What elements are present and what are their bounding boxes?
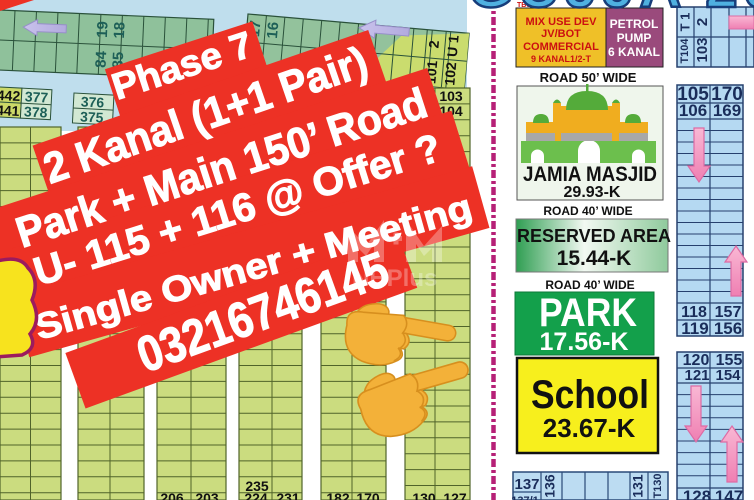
svg-text:182: 182 bbox=[326, 490, 350, 500]
svg-text:JAMIA MASJID: JAMIA MASJID bbox=[523, 163, 657, 186]
svg-text:JV/BOT: JV/BOT bbox=[541, 28, 581, 40]
svg-text:RESERVED AREA: RESERVED AREA bbox=[517, 226, 671, 246]
svg-text:29.93-K: 29.93-K bbox=[564, 184, 621, 201]
svg-text:19: 19 bbox=[94, 21, 112, 38]
svg-text:147: 147 bbox=[715, 487, 743, 500]
svg-text:NHPlus: NHPlus bbox=[352, 265, 437, 292]
svg-text:169: 169 bbox=[713, 101, 741, 120]
svg-text:127: 127 bbox=[443, 490, 467, 500]
svg-text:203: 203 bbox=[195, 490, 219, 500]
svg-text:17.56-K: 17.56-K bbox=[540, 328, 629, 356]
svg-text:136: 136 bbox=[542, 474, 558, 498]
svg-text:6 KANAL: 6 KANAL bbox=[608, 45, 660, 59]
svg-text:ROAD 40’ WIDE: ROAD 40’ WIDE bbox=[543, 204, 632, 218]
svg-text:441: 441 bbox=[0, 102, 20, 119]
svg-text:ROAD 40’ WIDE: ROAD 40’ WIDE bbox=[545, 278, 634, 292]
svg-text:T130: T130 bbox=[652, 473, 664, 498]
svg-text:ROAD 50’ WIDE: ROAD 50’ WIDE bbox=[540, 70, 637, 85]
svg-text:23.67-K: 23.67-K bbox=[543, 413, 636, 443]
svg-text:128: 128 bbox=[683, 487, 711, 500]
svg-text:2: 2 bbox=[425, 40, 442, 49]
svg-text:102: 102 bbox=[441, 61, 459, 86]
svg-text:School: School bbox=[531, 373, 649, 417]
svg-text:206: 206 bbox=[160, 490, 184, 500]
svg-text:9 KANAL1/2-T: 9 KANAL1/2-T bbox=[531, 54, 592, 64]
svg-text:T104: T104 bbox=[679, 38, 691, 64]
svg-text:U 1: U 1 bbox=[444, 34, 462, 57]
svg-text:154: 154 bbox=[715, 367, 741, 384]
svg-text:137: 137 bbox=[514, 476, 539, 493]
svg-text:378: 378 bbox=[24, 103, 48, 120]
svg-text:156: 156 bbox=[714, 319, 742, 338]
svg-text:106: 106 bbox=[679, 101, 707, 120]
svg-text:103: 103 bbox=[439, 88, 463, 104]
svg-text:18: 18 bbox=[111, 22, 129, 39]
svg-text:170: 170 bbox=[356, 490, 380, 500]
svg-text:121: 121 bbox=[684, 367, 709, 384]
svg-text:COMMERCIAL: COMMERCIAL bbox=[523, 41, 599, 53]
svg-text:231: 231 bbox=[276, 490, 300, 500]
svg-text:84: 84 bbox=[93, 50, 111, 68]
svg-text:15.44-K: 15.44-K bbox=[557, 247, 632, 270]
svg-text:16: 16 bbox=[264, 21, 282, 39]
svg-text:131: 131 bbox=[630, 474, 646, 498]
svg-text:130: 130 bbox=[412, 490, 436, 500]
svg-text:235: 235 bbox=[245, 478, 269, 494]
svg-text:PUMP: PUMP bbox=[617, 31, 652, 45]
svg-text:137/1: 137/1 bbox=[511, 495, 539, 500]
svg-text:103: 103 bbox=[694, 37, 711, 62]
svg-text:119: 119 bbox=[681, 319, 708, 338]
svg-text:GUJJA 20: GUJJA 20 bbox=[468, 0, 754, 20]
